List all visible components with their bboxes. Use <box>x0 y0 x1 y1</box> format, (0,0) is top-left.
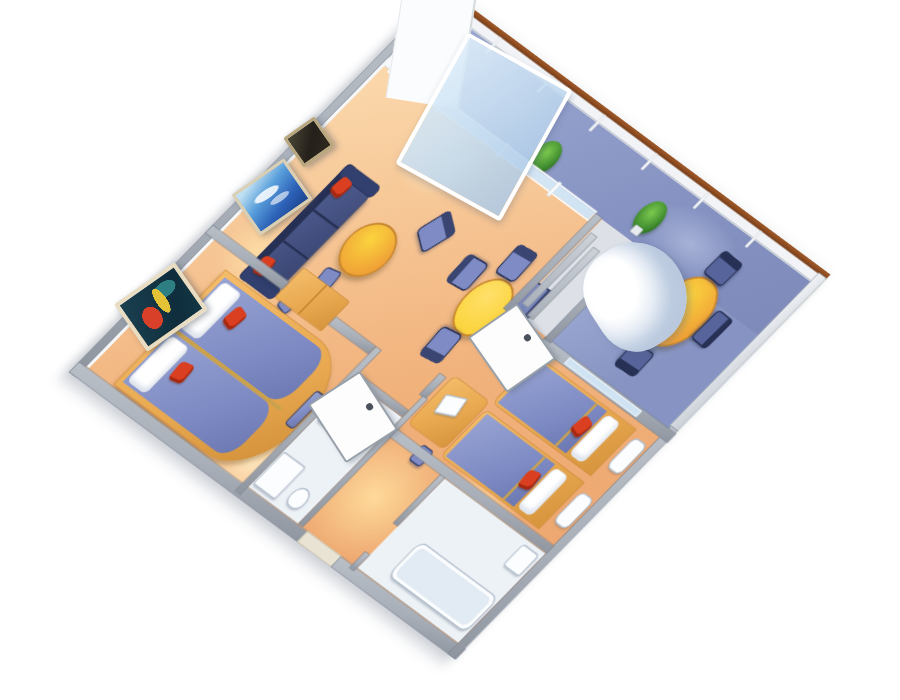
floorplan-stage <box>0 0 900 700</box>
